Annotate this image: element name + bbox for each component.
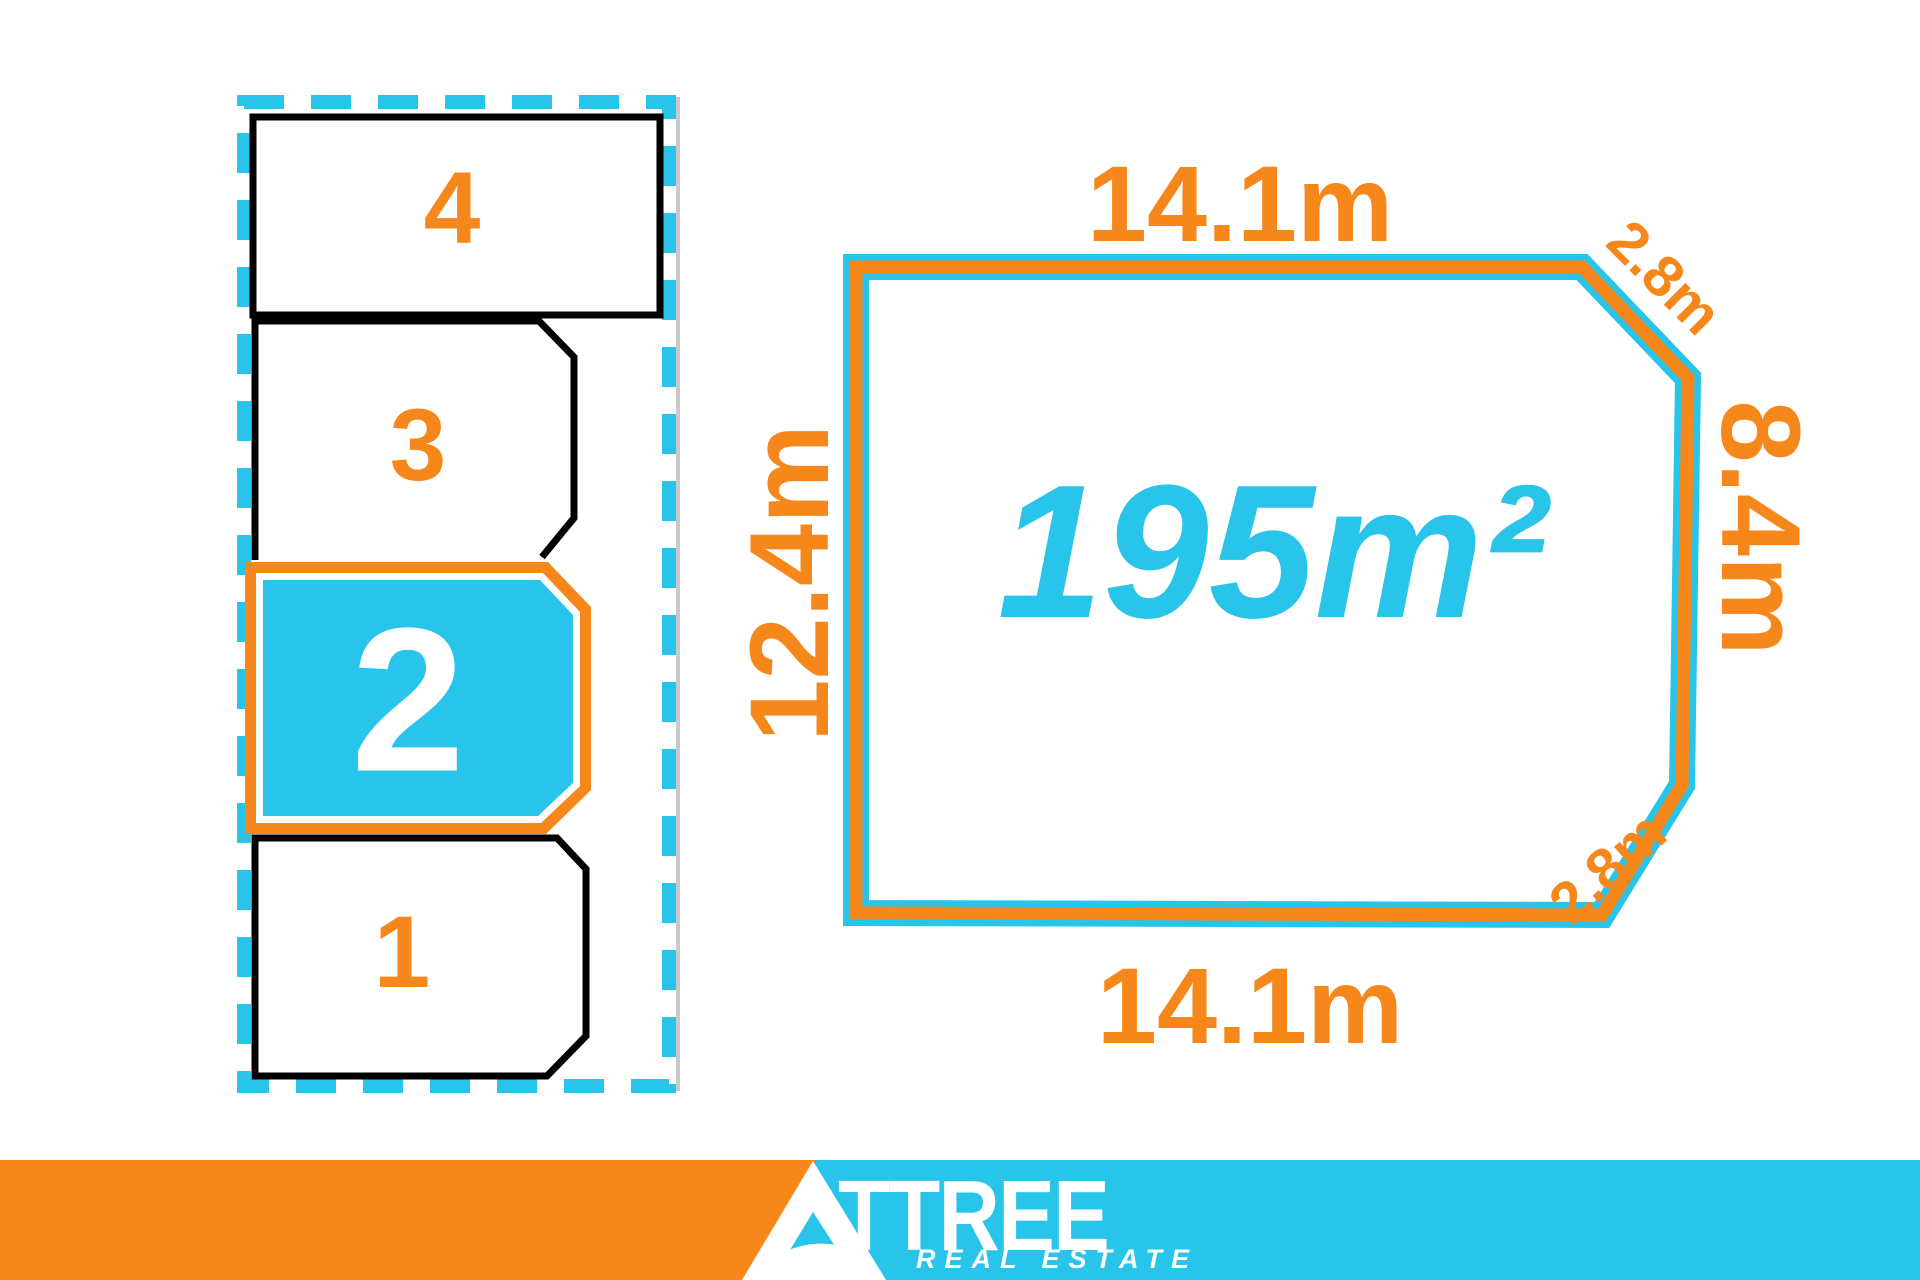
brand-tagline: REAL ESTATE (916, 1246, 1198, 1273)
dimension-bottom: 14.1m (1097, 952, 1403, 1060)
lot-4-number: 4 (424, 157, 481, 259)
lot-plan-canvas: 4 3 2 1 14.1m 12.4m 8.4m 2.8m 2.8m 14.1m… (0, 0, 1920, 1280)
dimension-top: 14.1m (1087, 150, 1393, 258)
lot-2-number: 2 (351, 598, 465, 803)
plan-drawing (0, 0, 1920, 1280)
lot-area-label: 195m² (997, 457, 1546, 647)
dimension-right: 8.4m (1704, 400, 1816, 655)
lot-3-number: 3 (390, 394, 447, 496)
dimension-left: 12.4m (734, 424, 846, 742)
lot-1-number: 1 (374, 901, 431, 1003)
